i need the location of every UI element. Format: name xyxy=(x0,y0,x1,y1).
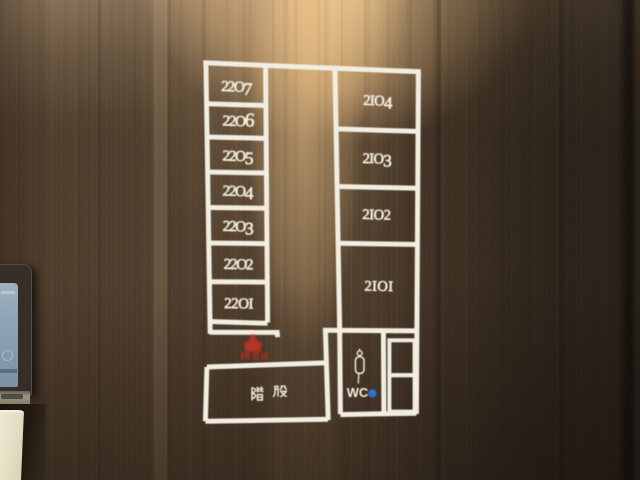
svg-text:2IO2: 2IO2 xyxy=(362,207,391,224)
svg-text:22O7: 22O7 xyxy=(221,78,253,99)
svg-text:22O6: 22O6 xyxy=(222,109,255,131)
svg-text:22O3: 22O3 xyxy=(222,218,254,239)
svg-text:WC: WC xyxy=(347,385,369,400)
svg-text:2IOI: 2IOI xyxy=(364,278,393,295)
svg-text:22O5: 22O5 xyxy=(222,147,254,168)
svg-text:2IO4: 2IO4 xyxy=(363,93,393,113)
svg-text:2IO3: 2IO3 xyxy=(362,151,391,171)
svg-text:22O2: 22O2 xyxy=(224,257,254,274)
svg-text:22OI: 22OI xyxy=(224,296,254,313)
svg-text:22O4: 22O4 xyxy=(222,182,254,203)
